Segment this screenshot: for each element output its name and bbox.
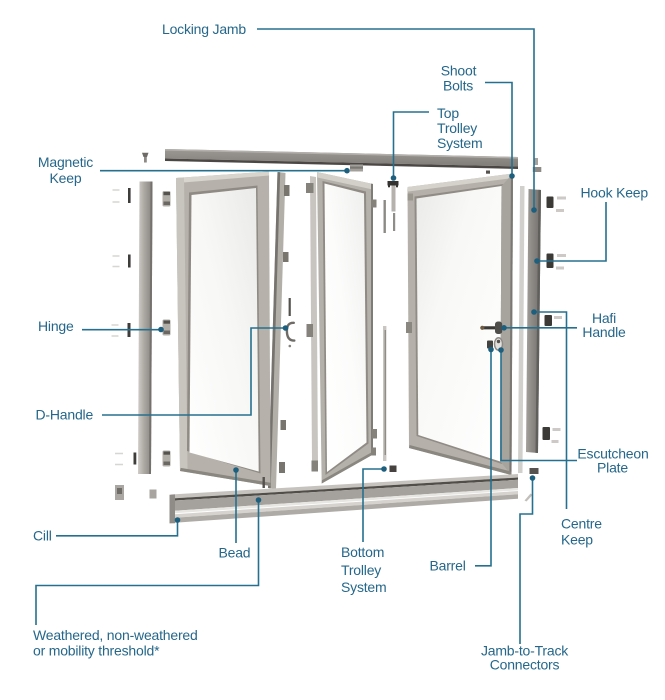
svg-text:System: System: [437, 135, 482, 151]
svg-text:Shoot: Shoot: [441, 63, 477, 79]
svg-text:Trolley: Trolley: [437, 120, 477, 136]
svg-text:Bead: Bead: [219, 545, 251, 561]
svg-text:System: System: [341, 579, 386, 595]
svg-text:Weathered, non-weathered: Weathered, non-weathered: [33, 627, 198, 643]
svg-text:Hinge: Hinge: [38, 318, 74, 334]
svg-text:Centre: Centre: [561, 516, 602, 532]
svg-text:Cill: Cill: [33, 528, 52, 544]
svg-text:Bolts: Bolts: [443, 78, 473, 94]
svg-text:Top: Top: [437, 105, 459, 121]
svg-text:Connectors: Connectors: [490, 657, 560, 673]
svg-text:Hook Keep: Hook Keep: [581, 185, 649, 201]
svg-text:Barrel: Barrel: [430, 558, 466, 574]
svg-text:Trolley: Trolley: [341, 562, 381, 578]
svg-text:Keep: Keep: [50, 170, 82, 186]
svg-text:Magnetic: Magnetic: [38, 154, 93, 170]
svg-text:Bottom: Bottom: [341, 544, 384, 560]
svg-text:Keep: Keep: [561, 532, 593, 548]
svg-text:or mobility threshold*: or mobility threshold*: [33, 643, 160, 659]
svg-text:Plate: Plate: [597, 460, 628, 476]
svg-text:Handle: Handle: [582, 324, 626, 340]
svg-text:Locking Jamb: Locking Jamb: [162, 21, 246, 37]
svg-text:D-Handle: D-Handle: [36, 407, 94, 423]
